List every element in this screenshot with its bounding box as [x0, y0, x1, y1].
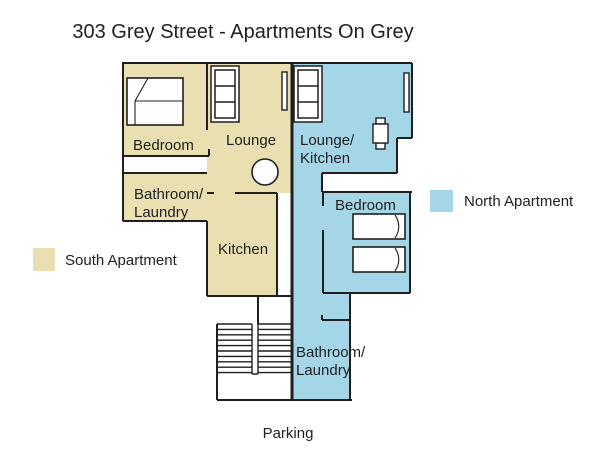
- staircase-icon: [217, 324, 291, 374]
- label-south-bathroom-line1: Bathroom/: [134, 186, 204, 203]
- north-wall-cavity-horizontal: [322, 173, 412, 192]
- single-bed-icon: [353, 214, 405, 239]
- label-parking: Parking: [263, 425, 314, 442]
- legend-north-swatch: [430, 190, 453, 212]
- sofa-icon: [294, 66, 322, 122]
- legend-north-label: North Apartment: [464, 193, 574, 210]
- label-north-bathroom-line1: Bathroom/: [296, 344, 366, 361]
- label-north-bathroom-line2: Laundry: [296, 362, 351, 379]
- round-table-icon: [252, 159, 278, 185]
- window-icon: [404, 73, 409, 112]
- label-south-lounge: Lounge: [226, 132, 276, 149]
- label-north-lounge-line1: Lounge/: [300, 132, 355, 149]
- legend-south-swatch: [33, 248, 55, 271]
- label-south-bathroom-line2: Laundry: [134, 204, 189, 221]
- floor-plan: 303 Grey Street - Apartments On Grey Bed…: [0, 0, 600, 450]
- single-bed-icon: [353, 247, 405, 272]
- floor-plan-page: 303 Grey Street - Apartments On Grey Bed…: [0, 0, 600, 450]
- label-north-bedroom: Bedroom: [335, 197, 396, 214]
- plan-title: 303 Grey Street - Apartments On Grey: [72, 21, 413, 43]
- legend-south-label: South Apartment: [65, 252, 178, 269]
- label-north-lounge-line2: Kitchen: [300, 150, 350, 167]
- north-wall-cavity-vertical: [397, 138, 412, 173]
- open-door-icon: [282, 72, 287, 110]
- sofa-icon: [211, 66, 239, 122]
- south-wall-cavity: [123, 156, 207, 173]
- double-bed-icon: [127, 78, 183, 125]
- label-south-kitchen: Kitchen: [218, 241, 268, 258]
- label-south-bedroom: Bedroom: [133, 137, 194, 154]
